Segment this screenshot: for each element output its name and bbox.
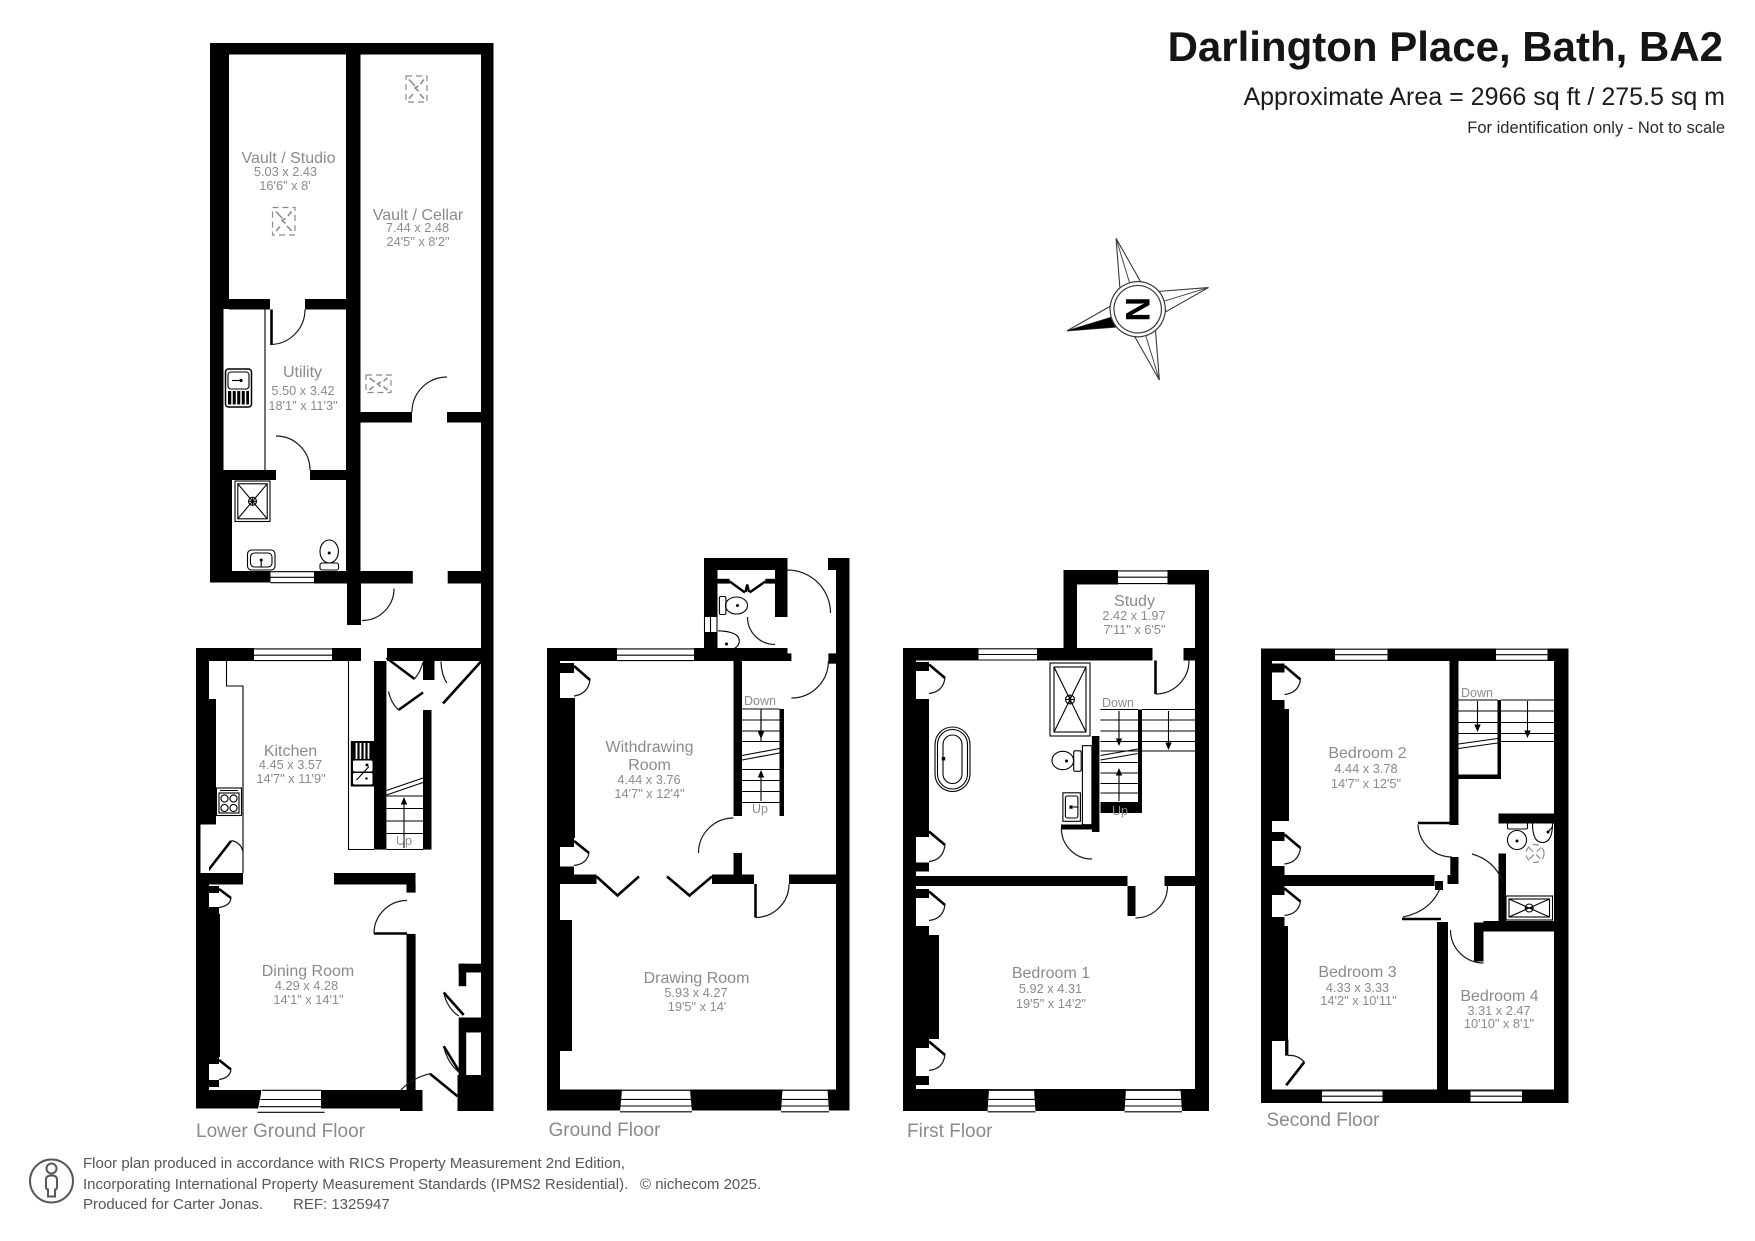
svg-text:5.50 x 3.42: 5.50 x 3.42 bbox=[271, 383, 334, 398]
svg-text:Produced for Carter Jonas.: Produced for Carter Jonas. bbox=[83, 1196, 263, 1213]
svg-text:Down: Down bbox=[1461, 686, 1493, 700]
svg-text:Up: Up bbox=[752, 802, 768, 816]
svg-text:24'5" x 8'2": 24'5" x 8'2" bbox=[386, 234, 449, 249]
svg-text:Bedroom 3: Bedroom 3 bbox=[1318, 964, 1396, 981]
svg-text:19'5" x 14'2": 19'5" x 14'2" bbox=[1016, 996, 1086, 1011]
svg-text:16'6" x 8': 16'6" x 8' bbox=[259, 178, 310, 193]
svg-text:14'7" x 12'5": 14'7" x 12'5" bbox=[1331, 776, 1401, 791]
svg-text:Withdrawing: Withdrawing bbox=[605, 739, 693, 756]
svg-text:For identification only - Not: For identification only - Not to scale bbox=[1467, 119, 1725, 137]
svg-text:5.03 x 2.43: 5.03 x 2.43 bbox=[254, 164, 317, 179]
svg-text:Darlington Place, Bath, BA2: Darlington Place, Bath, BA2 bbox=[1168, 23, 1723, 70]
svg-text:4.44 x 3.76: 4.44 x 3.76 bbox=[617, 772, 680, 787]
svg-text:Utility: Utility bbox=[283, 364, 322, 381]
svg-text:7'11" x 6'5": 7'11" x 6'5" bbox=[1103, 622, 1165, 637]
svg-text:18'1" x 11'3": 18'1" x 11'3" bbox=[268, 398, 337, 413]
svg-text:14'1" x 14'1": 14'1" x 14'1" bbox=[273, 992, 343, 1007]
svg-text:Down: Down bbox=[1102, 696, 1134, 710]
svg-text:REF: 1325947: REF: 1325947 bbox=[293, 1196, 390, 1213]
svg-text:4.44 x 3.78: 4.44 x 3.78 bbox=[1334, 761, 1397, 776]
svg-text:4.29 x 4.28: 4.29 x 4.28 bbox=[275, 978, 338, 993]
svg-text:7.44 x 2.48: 7.44 x 2.48 bbox=[386, 220, 449, 235]
svg-text:Lower Ground Floor: Lower Ground Floor bbox=[196, 1121, 366, 1142]
svg-text:First Floor: First Floor bbox=[907, 1121, 993, 1142]
svg-text:Bedroom 2: Bedroom 2 bbox=[1328, 745, 1406, 762]
svg-text:4.45 x 3.57: 4.45 x 3.57 bbox=[259, 757, 322, 772]
svg-text:14'7" x 12'4": 14'7" x 12'4" bbox=[614, 786, 684, 801]
svg-text:Approximate Area = 2966 sq ft: Approximate Area = 2966 sq ft / 275.5 sq… bbox=[1243, 83, 1725, 111]
svg-text:Up: Up bbox=[396, 834, 412, 848]
svg-text:Up: Up bbox=[1112, 804, 1128, 818]
svg-text:Floor plan produced in accorda: Floor plan produced in accordance with R… bbox=[83, 1155, 625, 1172]
svg-text:14'2" x 10'11": 14'2" x 10'11" bbox=[1320, 993, 1396, 1008]
svg-text:2.42 x 1.97: 2.42 x 1.97 bbox=[1102, 608, 1165, 623]
svg-text:Bedroom 1: Bedroom 1 bbox=[1012, 965, 1090, 982]
svg-text:Down: Down bbox=[744, 694, 776, 708]
svg-text:5.93 x 4.27: 5.93 x 4.27 bbox=[664, 985, 727, 1000]
svg-text:10'10" x 8'1": 10'10" x 8'1" bbox=[1464, 1016, 1534, 1031]
svg-text:14'7" x 11'9": 14'7" x 11'9" bbox=[256, 771, 325, 786]
svg-text:Incorporating International Pr: Incorporating International Property Mea… bbox=[83, 1176, 628, 1193]
svg-text:N: N bbox=[1120, 297, 1158, 322]
svg-text:© nichecom 2025.: © nichecom 2025. bbox=[640, 1176, 761, 1193]
svg-text:19'5" x 14': 19'5" x 14' bbox=[668, 999, 727, 1014]
svg-text:Second Floor: Second Floor bbox=[1267, 1110, 1381, 1131]
svg-text:5.92 x 4.31: 5.92 x 4.31 bbox=[1019, 981, 1082, 996]
svg-text:Ground Floor: Ground Floor bbox=[549, 1120, 662, 1141]
